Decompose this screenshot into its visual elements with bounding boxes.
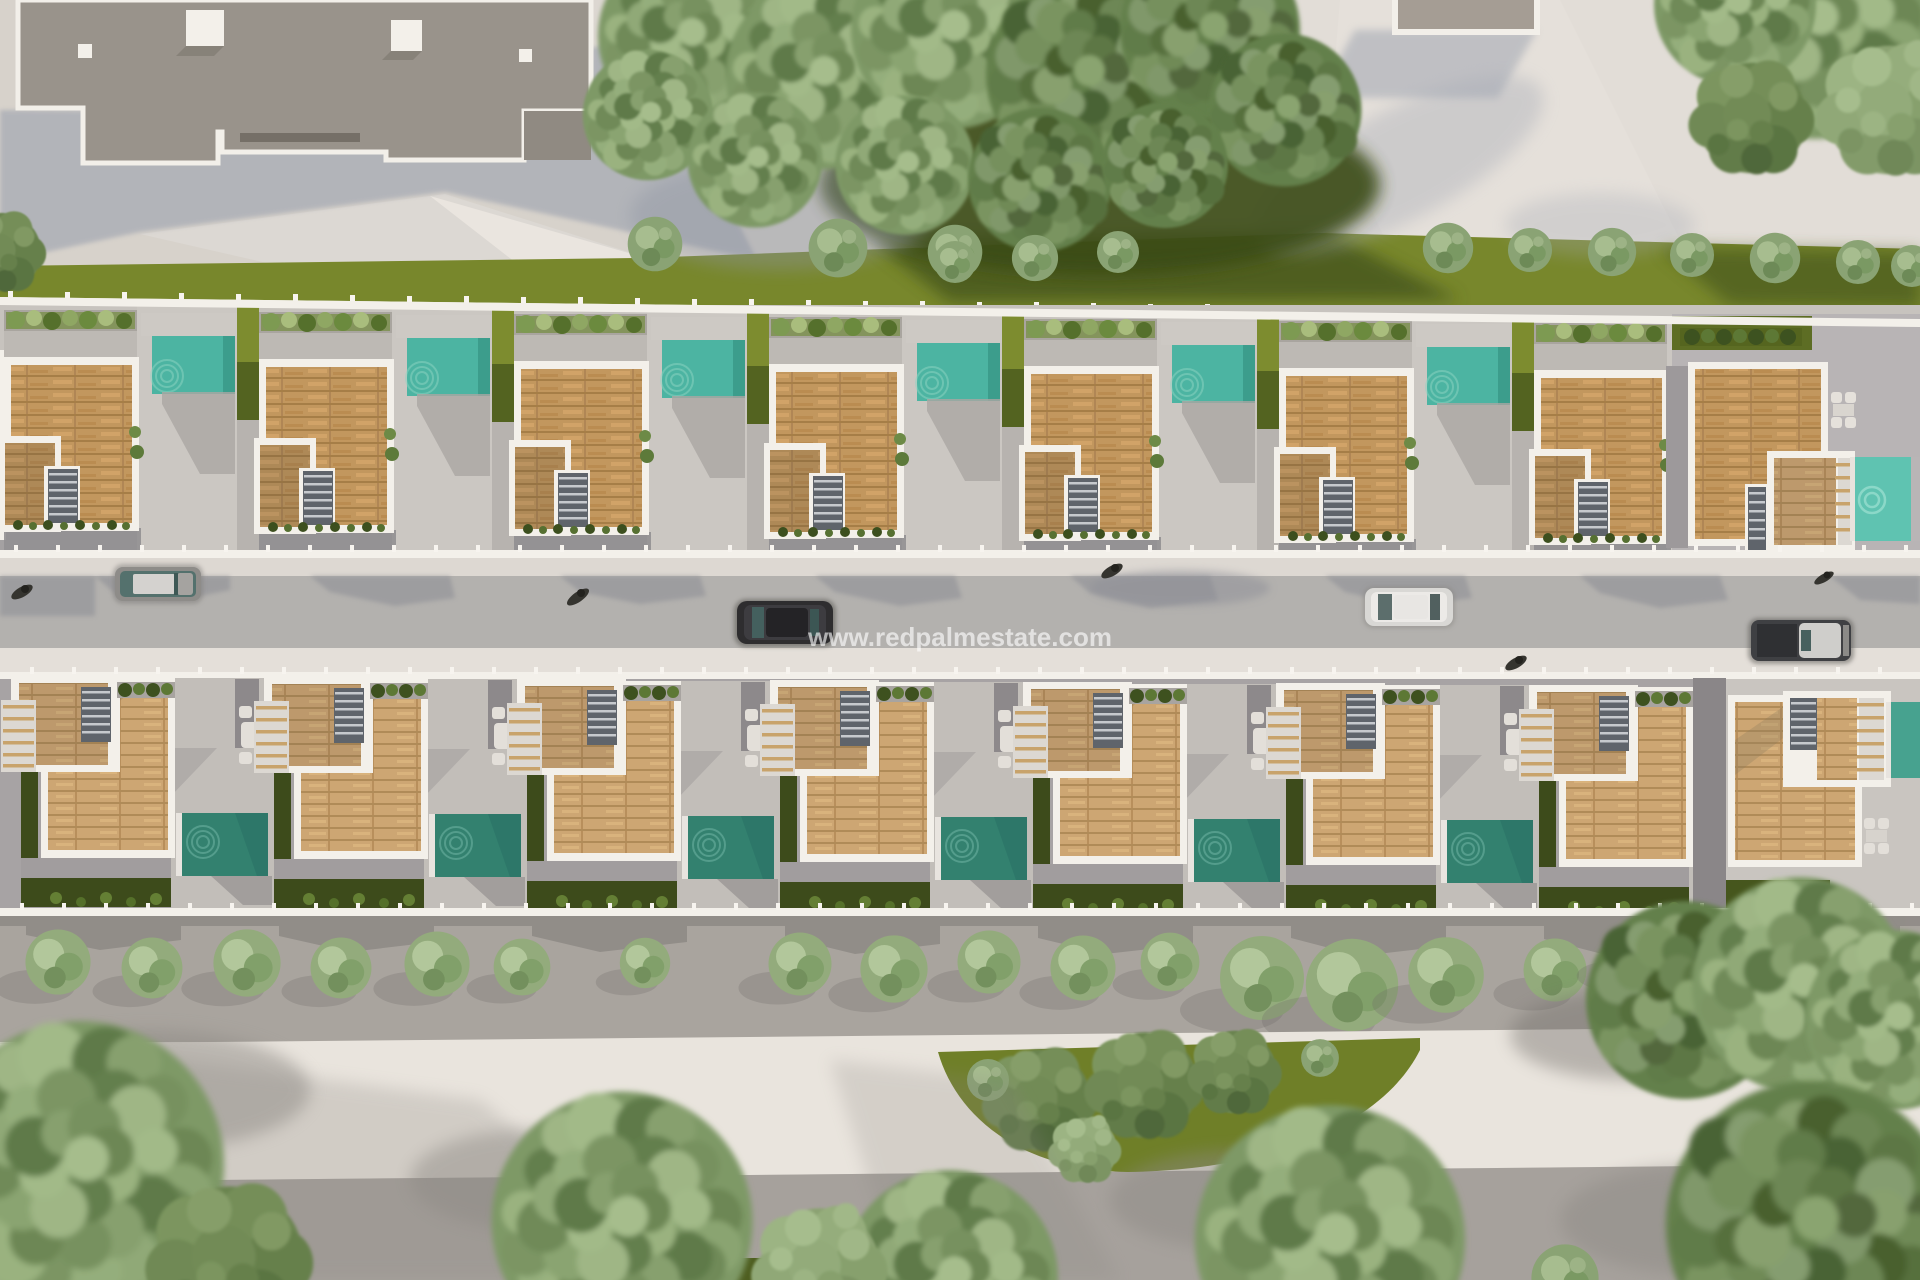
svg-text:www.redpalmestate.com: www.redpalmestate.com <box>807 622 1112 652</box>
